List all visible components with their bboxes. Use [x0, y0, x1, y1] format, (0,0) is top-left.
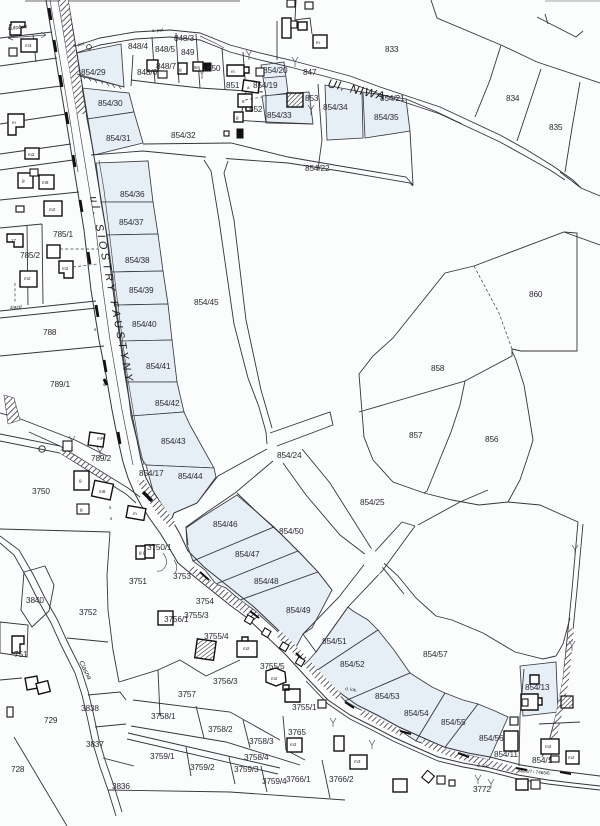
svg-text:3840: 3840 — [26, 595, 44, 605]
svg-text:854/35: 854/35 — [374, 112, 399, 122]
svg-text:854/29: 854/29 — [81, 67, 106, 77]
svg-text:a: a — [247, 85, 250, 90]
svg-text:8: 8 — [242, 99, 245, 104]
svg-text:849: 849 — [181, 47, 195, 57]
svg-text:m2: m2 — [545, 744, 552, 749]
svg-text:3752: 3752 — [79, 607, 97, 617]
svg-text:854/11: 854/11 — [494, 749, 518, 759]
svg-text:854/21: 854/21 — [380, 93, 405, 103]
svg-text:m3: m3 — [354, 759, 361, 764]
svg-text:m2: m2 — [24, 276, 31, 281]
svg-text:834: 834 — [506, 93, 520, 103]
svg-text:854/19: 854/19 — [253, 80, 278, 90]
svg-text:m2: m2 — [290, 742, 297, 747]
svg-text:854/22: 854/22 — [305, 163, 330, 173]
svg-text:854/42: 854/42 — [155, 398, 180, 408]
svg-text:848/6: 848/6 — [137, 67, 158, 77]
svg-text:751: 751 — [14, 649, 28, 659]
svg-text:3759/1: 3759/1 — [150, 751, 175, 761]
svg-text:8m: 8m — [194, 65, 201, 70]
svg-text:853: 853 — [305, 93, 319, 103]
svg-text:3756/1: 3756/1 — [164, 614, 189, 624]
svg-text:3756/3: 3756/3 — [213, 676, 238, 686]
svg-text:789/1: 789/1 — [50, 379, 71, 389]
svg-text:m2: m2 — [49, 207, 56, 212]
svg-text:m: m — [133, 511, 137, 516]
svg-text:3758/3: 3758/3 — [249, 736, 274, 746]
svg-text:g: g — [22, 178, 25, 183]
svg-text:m2: m2 — [62, 266, 69, 271]
svg-text:854/56: 854/56 — [479, 733, 504, 743]
svg-text:848/3: 848/3 — [174, 33, 195, 43]
svg-text:728: 728 — [11, 764, 25, 774]
svg-text:854/53: 854/53 — [375, 691, 400, 701]
svg-text:854/1: 854/1 — [532, 755, 553, 765]
svg-text:a. pol.: a. pol. — [152, 27, 165, 33]
svg-text:g: g — [179, 67, 182, 72]
svg-text:854/57: 854/57 — [423, 649, 448, 659]
svg-text:854/47: 854/47 — [235, 549, 260, 559]
svg-text:3837: 3837 — [86, 739, 104, 749]
svg-text:m: m — [231, 69, 235, 74]
svg-text:3765: 3765 — [288, 727, 306, 737]
svg-text:g: g — [80, 507, 83, 512]
svg-text:854/33: 854/33 — [267, 110, 292, 120]
svg-text:854/13: 854/13 — [525, 682, 550, 692]
svg-text:789/2: 789/2 — [91, 453, 112, 463]
svg-text:854/43: 854/43 — [161, 436, 186, 446]
svg-text:3758/4: 3758/4 — [244, 752, 269, 762]
svg-text:854/51: 854/51 — [322, 636, 347, 646]
svg-text:17: 17 — [11, 238, 17, 243]
svg-text:3755/5: 3755/5 — [260, 661, 285, 671]
svg-text:3754: 3754 — [196, 596, 214, 606]
svg-text:m: m — [316, 40, 320, 45]
svg-text:m2: m2 — [28, 152, 35, 157]
svg-text:848/4: 848/4 — [128, 41, 149, 51]
svg-text:mR: mR — [97, 436, 105, 441]
svg-text:854/20: 854/20 — [263, 65, 288, 75]
svg-text:851: 851 — [226, 80, 240, 90]
svg-text:m8: m8 — [42, 180, 49, 185]
svg-text:850: 850 — [207, 63, 221, 73]
svg-text:854/49: 854/49 — [286, 605, 311, 615]
svg-text:3766/2: 3766/2 — [329, 774, 354, 784]
svg-text:848/5: 848/5 — [155, 44, 176, 54]
svg-text:785/1: 785/1 — [53, 229, 74, 239]
svg-text:3759/2: 3759/2 — [190, 762, 215, 772]
svg-text:m2: m2 — [271, 676, 278, 681]
svg-text:785/2: 785/2 — [20, 250, 41, 260]
svg-text:3751: 3751 — [129, 576, 147, 586]
svg-text:3838: 3838 — [81, 703, 99, 713]
svg-text:854/54: 854/54 — [404, 708, 429, 718]
svg-text:857: 857 — [409, 430, 423, 440]
svg-text:zjazd: zjazd — [9, 304, 22, 311]
svg-text:m8: m8 — [99, 489, 106, 494]
svg-text:3759/4: 3759/4 — [262, 776, 287, 786]
svg-text:852: 852 — [249, 104, 263, 114]
svg-text:m2: m2 — [243, 646, 250, 651]
svg-text:3758/1: 3758/1 — [151, 711, 176, 721]
svg-text:860: 860 — [529, 289, 543, 299]
svg-text:858: 858 — [431, 363, 445, 373]
svg-text:833: 833 — [385, 44, 399, 54]
svg-text:854/48: 854/48 — [254, 576, 279, 586]
svg-text:3750: 3750 — [32, 486, 50, 496]
svg-text:3757: 3757 — [178, 689, 196, 699]
svg-text:854/38: 854/38 — [125, 255, 150, 265]
svg-text:3750/1: 3750/1 — [147, 542, 172, 552]
svg-text:835: 835 — [549, 122, 563, 132]
svg-text:854/44: 854/44 — [178, 471, 203, 481]
svg-text:854/39: 854/39 — [129, 285, 154, 295]
svg-text:m: m — [12, 120, 16, 125]
svg-text:3755/1: 3755/1 — [292, 702, 317, 712]
svg-text:3836: 3836 — [112, 781, 130, 791]
svg-text:854/52: 854/52 — [340, 659, 365, 669]
svg-text:854/37: 854/37 — [119, 217, 144, 227]
svg-text:854/30: 854/30 — [98, 98, 123, 108]
svg-text:m3: m3 — [25, 43, 32, 48]
svg-text:854/31: 854/31 — [106, 133, 131, 143]
svg-text:g: g — [79, 478, 82, 483]
svg-text:3755/4: 3755/4 — [204, 631, 229, 641]
svg-text:856: 856 — [485, 434, 499, 444]
svg-text:848/7: 848/7 — [156, 61, 177, 71]
svg-text:3766/1: 3766/1 — [286, 774, 311, 784]
svg-text:854/46: 854/46 — [213, 519, 238, 529]
svg-text:m2: m2 — [568, 755, 575, 760]
svg-text:854/40: 854/40 — [132, 319, 157, 329]
svg-text:788: 788 — [43, 327, 57, 337]
svg-text:854/45: 854/45 — [194, 297, 219, 307]
svg-text:3759/3: 3759/3 — [234, 764, 259, 774]
svg-text:g: g — [236, 115, 239, 120]
svg-text:729: 729 — [44, 715, 58, 725]
svg-text:847: 847 — [303, 67, 317, 77]
svg-text:854/55: 854/55 — [441, 717, 466, 727]
svg-text:3772: 3772 — [473, 784, 491, 794]
svg-text:d. lok.: d. lok. — [477, 763, 490, 769]
svg-text:854/36: 854/36 — [120, 189, 145, 199]
svg-text:854/41: 854/41 — [146, 361, 171, 371]
svg-text:g g: g g — [139, 550, 146, 555]
svg-text:3758/2: 3758/2 — [208, 724, 233, 734]
svg-text:854/24: 854/24 — [277, 450, 302, 460]
svg-text:854/34: 854/34 — [323, 102, 348, 112]
svg-text:854/50: 854/50 — [279, 526, 304, 536]
svg-text:854/25: 854/25 — [360, 497, 385, 507]
svg-text:854/17: 854/17 — [139, 468, 164, 478]
svg-text:3753: 3753 — [173, 571, 191, 581]
svg-text:854/32: 854/32 — [171, 130, 196, 140]
